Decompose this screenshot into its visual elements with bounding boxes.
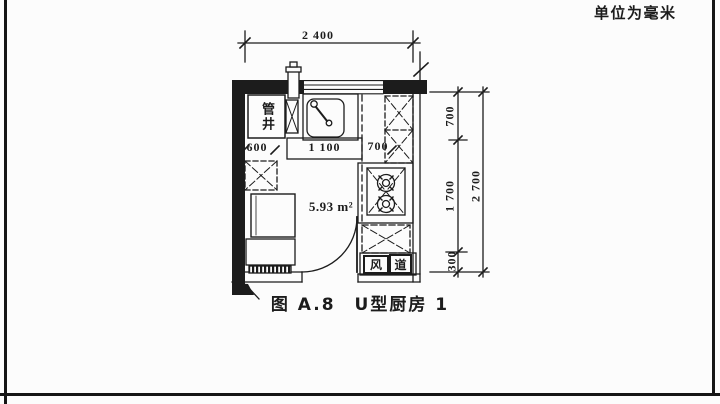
- unit-note: 单位为毫米: [594, 5, 677, 22]
- figure-caption: 图 A.8 U型厨房 1: [246, 296, 474, 315]
- area-label: 5.93 m²: [294, 200, 368, 214]
- top-wall-left: [232, 80, 288, 94]
- left-wall-foot: [232, 283, 254, 295]
- left-wall: [232, 80, 245, 292]
- sink-icon: [303, 94, 358, 140]
- dim-right-bottom: 300: [445, 251, 460, 272]
- top-wall-right: [383, 80, 427, 94]
- dim-inner-right: 700: [362, 140, 394, 153]
- left-cabinet: [245, 161, 277, 190]
- scanned-figure-page: 单位为毫米 2 400 600 1 100 700 700 1 700 300 …: [0, 0, 720, 404]
- lower-right-cabinet: [362, 225, 410, 253]
- dim-inner-middle: 1 100: [288, 141, 361, 154]
- table-icon: [251, 194, 295, 237]
- refrigerator-icon: [246, 239, 295, 273]
- door-icon: [302, 217, 357, 272]
- top-wall-mid: [299, 80, 304, 94]
- duct-label-feng: 风: [364, 256, 388, 273]
- cabinet-strip: [286, 100, 298, 133]
- duct-label-dao: 道: [390, 255, 411, 273]
- window-icon: [304, 81, 383, 94]
- dim-right-total: 2 700: [469, 170, 484, 202]
- dim-inner-left: 600: [240, 141, 274, 154]
- pipe-shaft-label: 管井: [248, 95, 285, 138]
- dim-right-middle: 1 700: [443, 180, 458, 212]
- dim-top-width: 2 400: [288, 29, 348, 42]
- vent-stack-icon: [286, 62, 301, 98]
- dim-right-top: 700: [443, 106, 458, 127]
